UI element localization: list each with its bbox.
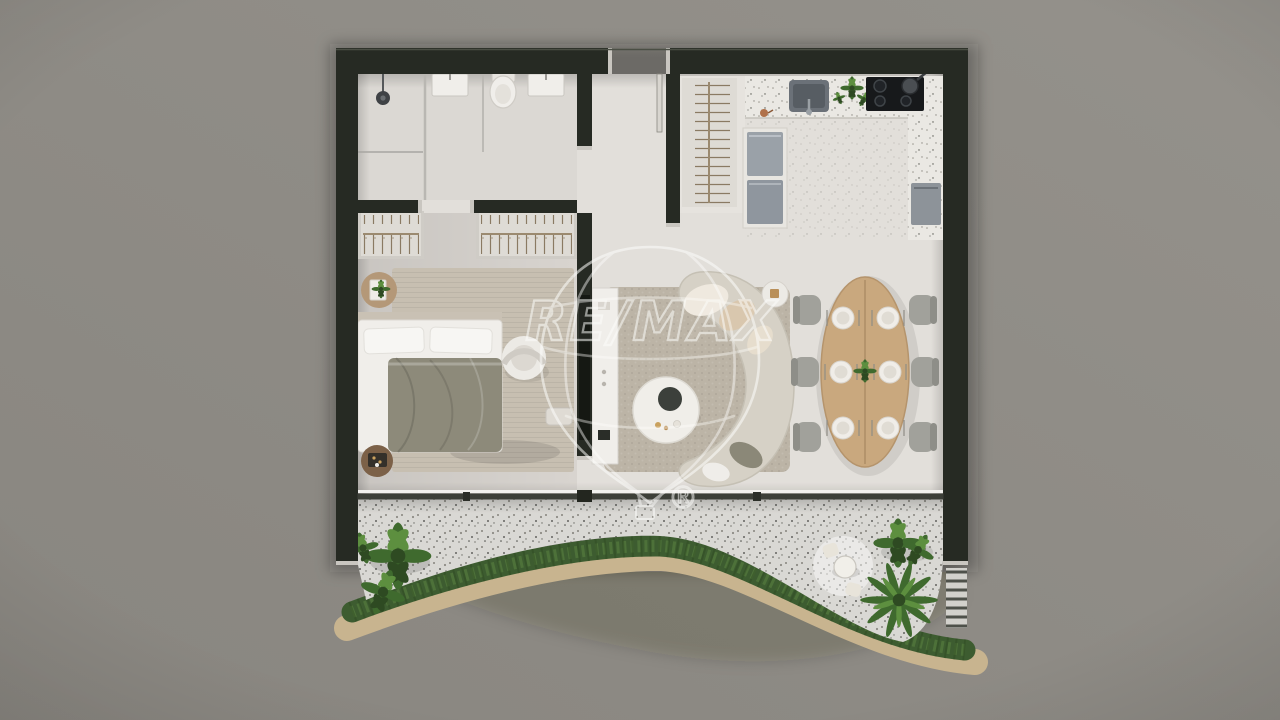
wardrobe-right bbox=[476, 211, 577, 259]
kitchen-sink bbox=[789, 80, 829, 115]
plant-side-table bbox=[361, 272, 397, 308]
dining-area bbox=[791, 276, 939, 476]
dining-chair bbox=[909, 295, 937, 325]
wall-top-left bbox=[336, 48, 612, 74]
appliance-column bbox=[743, 128, 787, 228]
watermark-text: RE/MAX bbox=[525, 290, 778, 353]
dining-chair bbox=[791, 357, 819, 387]
wall-bath-bottom-a bbox=[358, 200, 422, 213]
wall-top-right bbox=[666, 48, 968, 74]
garden-steps bbox=[946, 568, 967, 628]
pillow bbox=[430, 327, 493, 354]
wall-bath-bottom-b bbox=[470, 200, 577, 213]
floorplan-canvas: RE/MAX ® bbox=[0, 0, 1280, 720]
duvet bbox=[388, 358, 502, 452]
window-mullion bbox=[463, 492, 470, 501]
toilet bbox=[490, 72, 516, 108]
wall-right bbox=[943, 48, 968, 565]
appliance-front bbox=[747, 132, 783, 176]
pan bbox=[902, 78, 918, 94]
wardrobe-left bbox=[358, 211, 424, 259]
bathroom-sink-right bbox=[528, 74, 564, 96]
dining-chair bbox=[793, 422, 821, 452]
cooktop bbox=[866, 71, 928, 111]
wall-bath-stub bbox=[577, 74, 592, 150]
pouf bbox=[361, 445, 393, 477]
pillow bbox=[364, 327, 425, 354]
window-mullion bbox=[753, 492, 761, 501]
wall-closet-left bbox=[666, 74, 680, 227]
window-mullion bbox=[577, 490, 592, 502]
entry-door-leaf bbox=[657, 74, 662, 132]
watermark-registered: ® bbox=[668, 481, 698, 516]
floorplan-render: RE/MAX ® bbox=[0, 0, 1280, 720]
dining-table bbox=[821, 277, 909, 467]
counter-right bbox=[908, 118, 943, 240]
dining-chair bbox=[909, 422, 937, 452]
appliance-front bbox=[747, 180, 783, 224]
tray bbox=[658, 387, 682, 411]
coat-closet bbox=[680, 76, 745, 213]
bathroom-sink-left bbox=[432, 74, 468, 96]
dining-chair bbox=[793, 295, 821, 325]
wall-left bbox=[336, 48, 358, 565]
oven-front bbox=[911, 183, 941, 225]
dining-chair bbox=[911, 357, 939, 387]
